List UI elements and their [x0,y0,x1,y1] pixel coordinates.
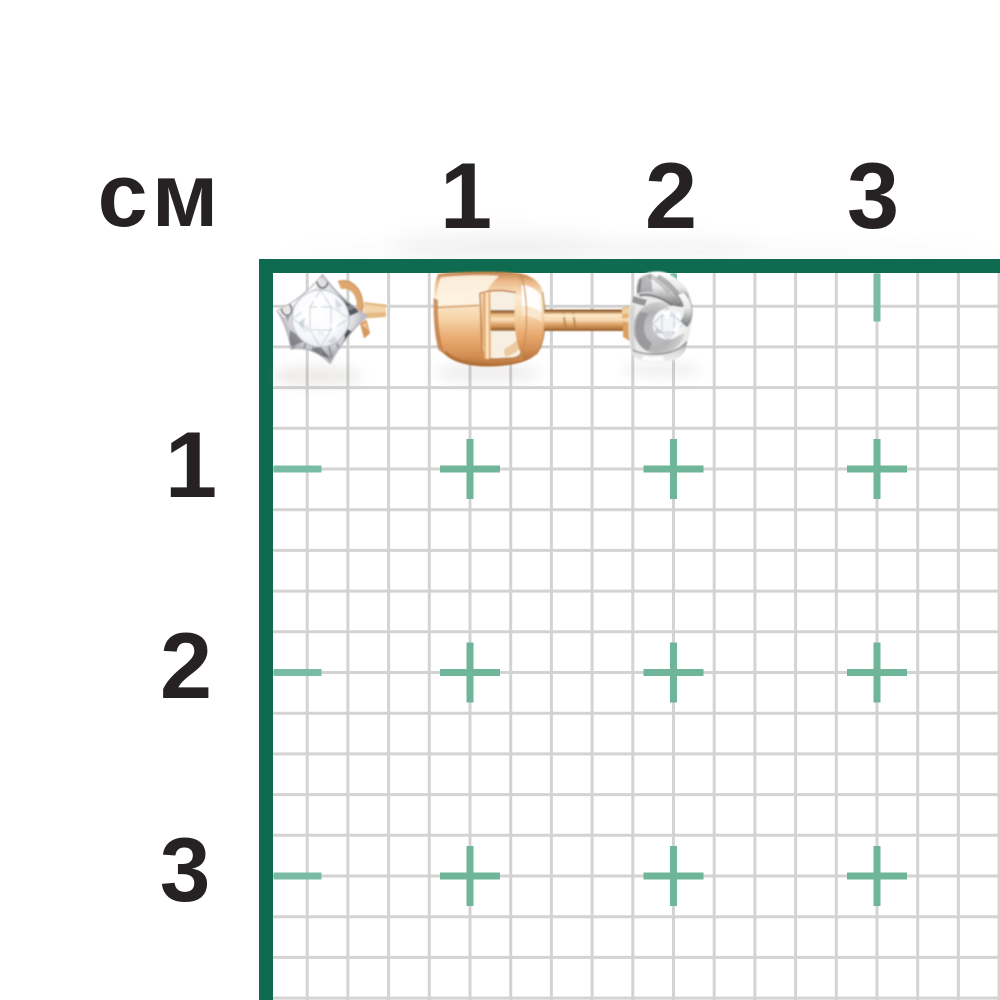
svg-text:2: 2 [160,613,212,718]
svg-text:1: 1 [440,143,492,248]
svg-text:3: 3 [160,820,211,921]
svg-text:3: 3 [847,143,899,248]
svg-text:2: 2 [645,143,697,248]
svg-text:1: 1 [165,412,217,517]
svg-text:см: см [98,146,223,246]
